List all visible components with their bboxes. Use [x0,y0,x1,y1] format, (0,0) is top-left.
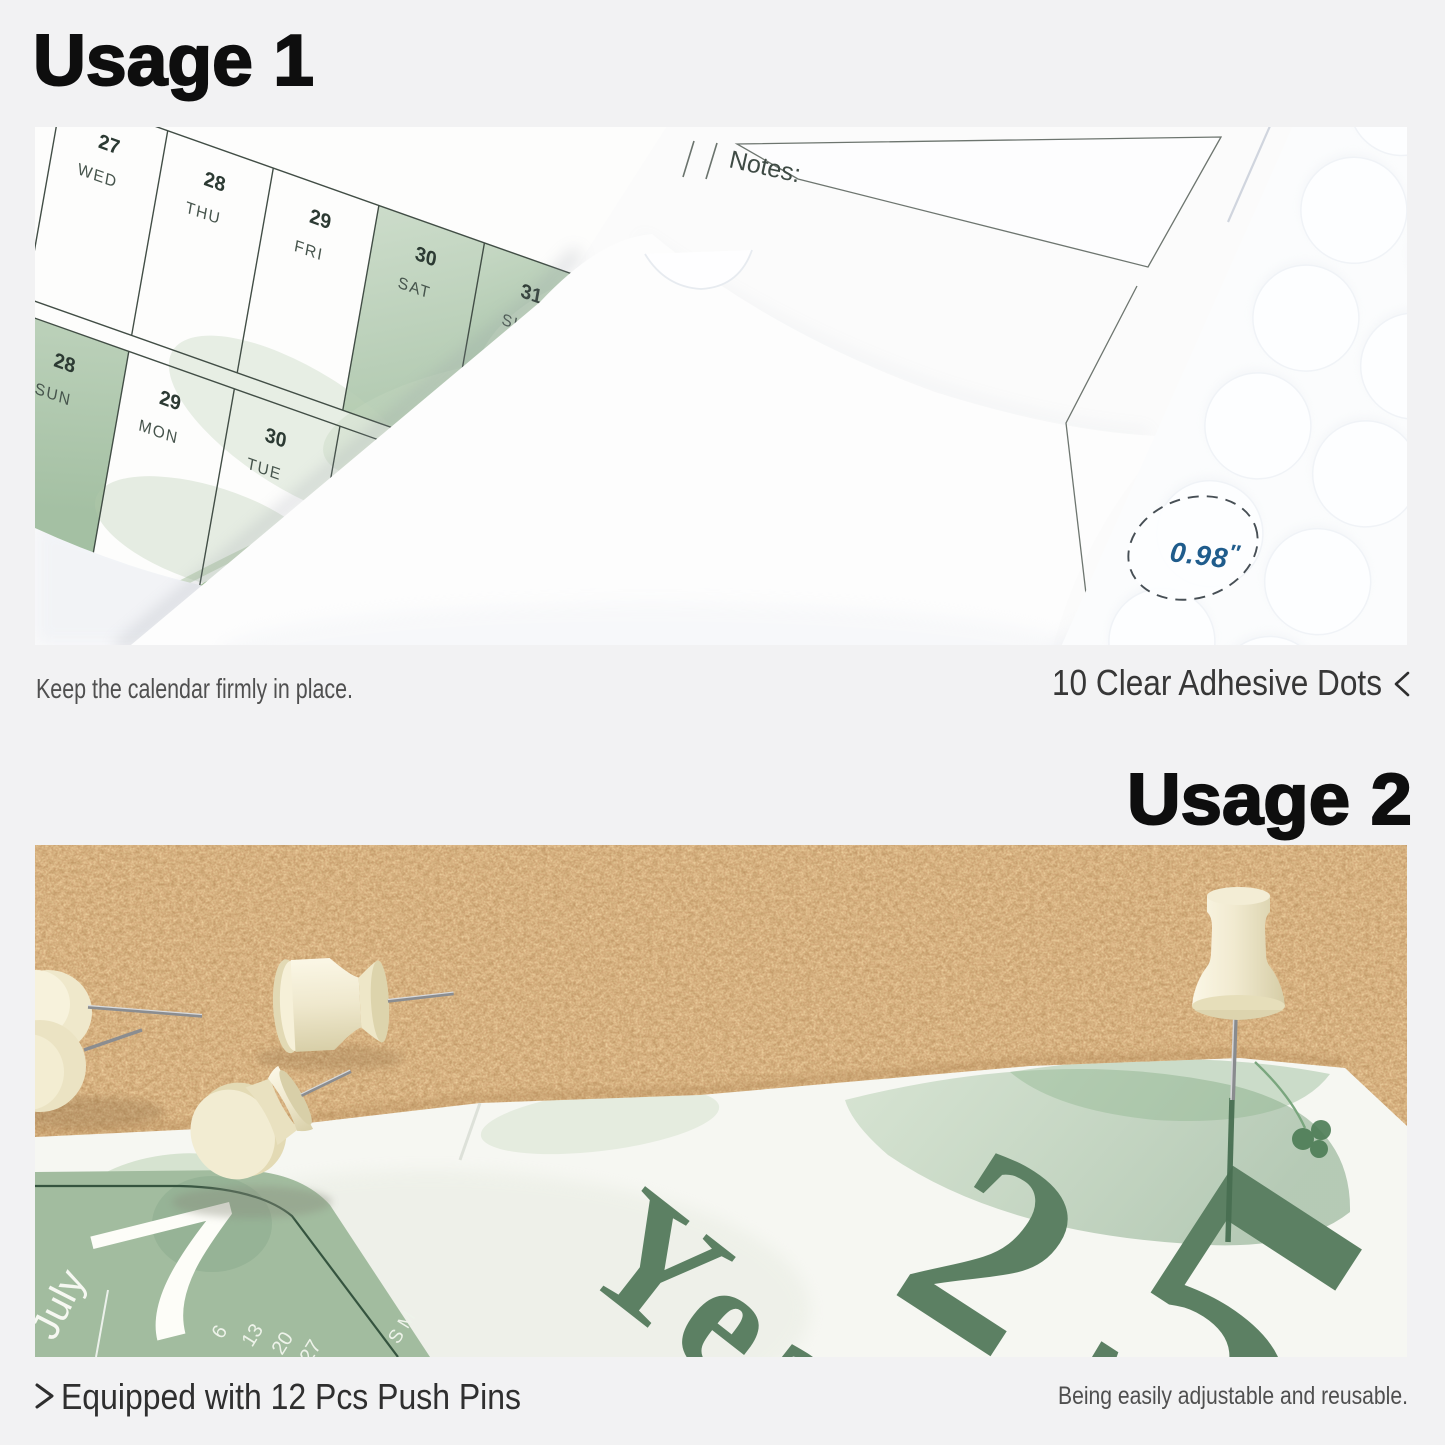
svg-text:10 Clear Adhesive Dots: 10 Clear Adhesive Dots [1052,662,1382,703]
svg-text:Keep the calendar firmly in pl: Keep the calendar firmly in place. [36,673,353,704]
svg-text:Usage 2: Usage 2 [1127,760,1412,840]
svg-text:Equipped with 12 Pcs Push Pins: Equipped with 12 Pcs Push Pins [61,1376,521,1417]
svg-text:Usage 1: Usage 1 [33,21,314,101]
svg-text:Being easily adjustable and re: Being easily adjustable and reusable. [1058,1382,1408,1410]
